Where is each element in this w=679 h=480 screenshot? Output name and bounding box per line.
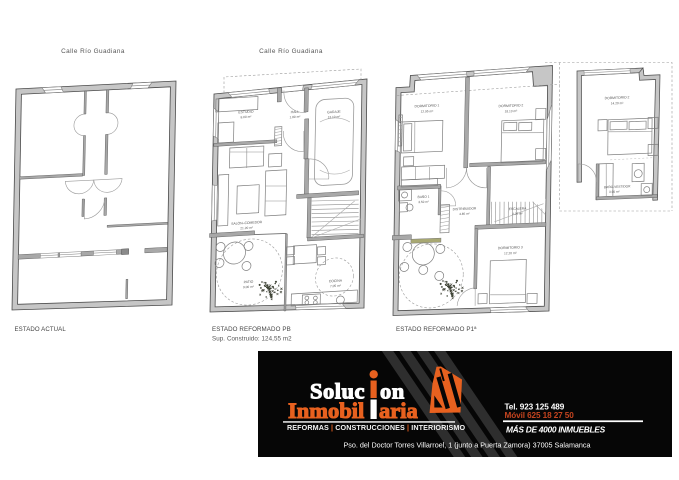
svg-text:21.20 m²: 21.20 m² (240, 226, 253, 231)
svg-text:9.00 m²: 9.00 m² (243, 285, 254, 290)
svg-text:HALL: HALL (291, 110, 300, 115)
svg-text:2.26 m²: 2.26 m² (512, 212, 523, 216)
svg-text:12.95 m²: 12.95 m² (421, 109, 434, 114)
svg-text:Calle Río Guadiana: Calle Río Guadiana (61, 48, 125, 55)
svg-text:COCINA: COCINA (329, 279, 343, 284)
svg-text:12.20 m²: 12.20 m² (504, 251, 517, 256)
svg-text:8.00 m²: 8.00 m² (241, 115, 252, 120)
svg-text:Inmobil: Inmobil (288, 398, 364, 423)
svg-text:1.80 m²: 1.80 m² (289, 115, 300, 120)
svg-text:4.85 m²: 4.85 m² (459, 212, 470, 216)
svg-text:PATIO: PATIO (244, 280, 254, 285)
svg-text:Móvil 625 18 27 50: Móvil 625 18 27 50 (505, 411, 575, 420)
svg-text:14.20 m²: 14.20 m² (611, 101, 624, 106)
svg-text:GARAJE: GARAJE (327, 110, 341, 115)
svg-text:3.90 m²: 3.90 m² (609, 190, 620, 194)
svg-text:ESTADO ACTUAL: ESTADO ACTUAL (15, 326, 67, 333)
svg-text:18.13 m²: 18.13 m² (505, 109, 518, 114)
svg-text:MÁS DE 4000 INMUEBLES: MÁS DE 4000 INMUEBLES (506, 425, 606, 435)
svg-text:Sup. Construido: 124,55 m2: Sup. Construido: 124,55 m2 (212, 336, 292, 343)
svg-text:ESTADO REFORMADO PB: ESTADO REFORMADO PB (212, 326, 291, 333)
svg-text:aria: aria (379, 398, 418, 423)
svg-text:BAÑO-VESTIDOR: BAÑO-VESTIDOR (604, 183, 631, 189)
svg-text:DORMITORIO 2: DORMITORIO 2 (605, 95, 630, 100)
svg-text:ESTADO REFORMADO P1ª: ESTADO REFORMADO P1ª (396, 326, 477, 333)
svg-text:ESCALERA: ESCALERA (509, 206, 527, 211)
svg-text:Pso. del Doctor Torres Villarr: Pso. del Doctor Torres Villarroel, 1 (ju… (343, 441, 590, 450)
svg-text:Calle Río Guadiana: Calle Río Guadiana (259, 48, 323, 55)
svg-text:7.05 m²: 7.05 m² (330, 284, 341, 289)
svg-text:13.10 m²: 13.10 m² (328, 115, 341, 120)
svg-text:3.50 m²: 3.50 m² (418, 200, 429, 204)
svg-text:BAÑO 1: BAÑO 1 (417, 194, 429, 199)
svg-text:REFORMAS | CONSTRUCCIONES | IN: REFORMAS | CONSTRUCCIONES | INTERIORISMO (287, 423, 465, 432)
